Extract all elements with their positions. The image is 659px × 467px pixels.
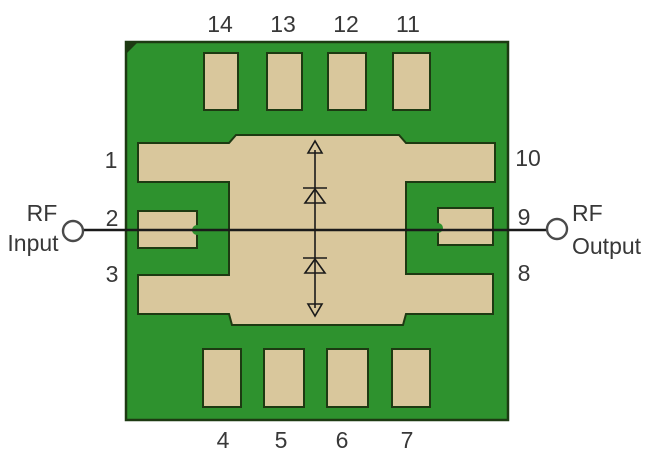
pin-label-13: 13	[270, 11, 296, 37]
rf-output-label-line2: Output	[572, 233, 642, 259]
pin-label-12: 12	[333, 11, 359, 37]
pin11-pad	[393, 53, 430, 110]
pin5-pad	[264, 349, 304, 407]
pin-label-11: 11	[396, 11, 420, 37]
pin-label-9: 9	[518, 204, 531, 230]
rf-input-label-line2: Input	[7, 230, 59, 256]
pin9-pad	[438, 208, 493, 245]
pin-label-6: 6	[336, 427, 349, 453]
rf-input-label: RF Input	[7, 200, 59, 256]
pin6-pad	[327, 349, 368, 407]
rf-input-label-line1: RF	[27, 200, 58, 226]
pin-label-1: 1	[105, 147, 118, 173]
pin-label-5: 5	[275, 427, 288, 453]
pin-label-4: 4	[217, 427, 230, 453]
pin-label-7: 7	[401, 427, 414, 453]
pin-label-8: 8	[518, 260, 531, 286]
ic-pinout-diagram: 14 13 12 11 4 5 6 7 1 2 3 10 9 8 RF Inpu…	[0, 0, 659, 467]
pin14-pad	[204, 53, 238, 110]
pin-label-10: 10	[515, 145, 541, 171]
rf-output-label-line1: RF	[572, 200, 603, 226]
rf-output-terminal-icon	[547, 219, 567, 239]
pin9-pad-notch	[433, 223, 443, 233]
pin7-pad	[392, 349, 430, 407]
pin12-pad	[328, 53, 366, 110]
rf-input-terminal-icon	[63, 221, 83, 241]
rf-output-label: RF Output	[572, 200, 642, 259]
pin13-pad	[267, 53, 302, 110]
diagram-canvas: 14 13 12 11 4 5 6 7 1 2 3 10 9 8 RF Inpu…	[0, 0, 659, 467]
pin4-pad	[203, 349, 241, 407]
pin-label-3: 3	[106, 261, 119, 287]
pin-label-14: 14	[207, 11, 233, 37]
pin-label-2: 2	[106, 205, 119, 231]
